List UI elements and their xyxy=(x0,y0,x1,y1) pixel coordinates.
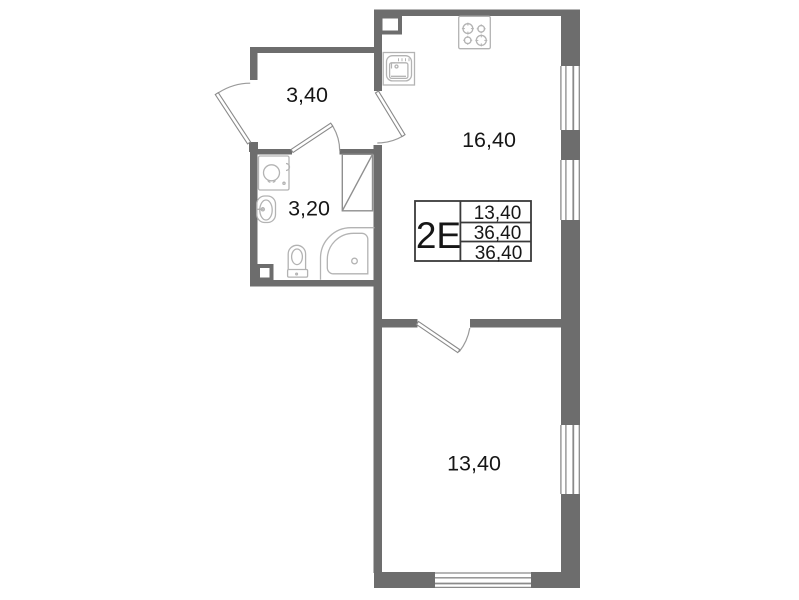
svg-text:36,40: 36,40 xyxy=(474,223,522,244)
svg-text:13,40: 13,40 xyxy=(474,203,522,224)
svg-text:3,20: 3,20 xyxy=(288,196,330,220)
svg-text:36,40: 36,40 xyxy=(475,243,523,264)
svg-text:13,40: 13,40 xyxy=(447,452,501,476)
svg-text:3,40: 3,40 xyxy=(286,83,328,107)
svg-text:2Е: 2Е xyxy=(416,215,461,256)
svg-text:16,40: 16,40 xyxy=(462,128,516,152)
